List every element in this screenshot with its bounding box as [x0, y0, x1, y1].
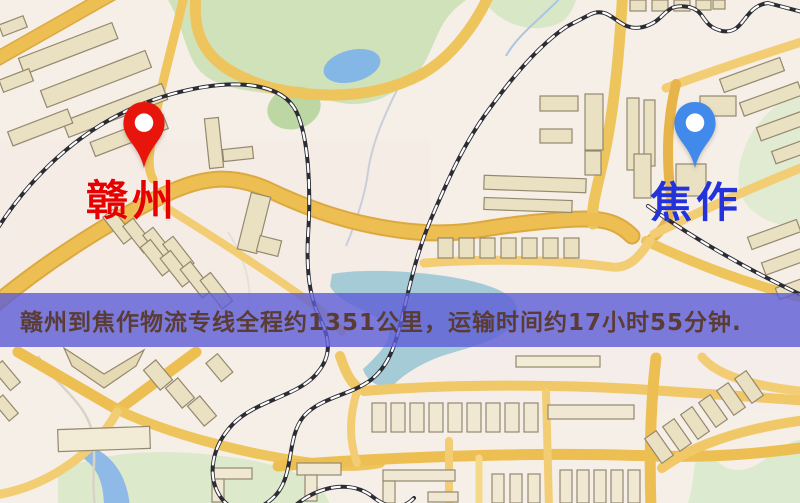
origin-city-label: 赣州: [86, 180, 178, 222]
origin-pin-shape: [123, 102, 164, 168]
logistics-route-map: 赣州 焦作 赣州到焦作物流专线全程约1351公里，运输时间约17小时55分钟.: [0, 0, 800, 503]
map-canvas: [0, 0, 800, 503]
route-info-banner: 赣州到焦作物流专线全程约1351公里，运输时间约17小时55分钟.: [0, 293, 800, 347]
destination-pin-icon: [672, 100, 718, 170]
route-info-text: 赣州到焦作物流专线全程约1351公里，运输时间约17小时55分钟.: [0, 303, 742, 337]
origin-pin-icon: [121, 100, 167, 170]
destination-pin-hole: [686, 113, 705, 132]
origin-pin-hole: [135, 113, 154, 132]
destination-city-label: 焦作: [650, 182, 742, 224]
destination-pin-shape: [674, 102, 715, 168]
